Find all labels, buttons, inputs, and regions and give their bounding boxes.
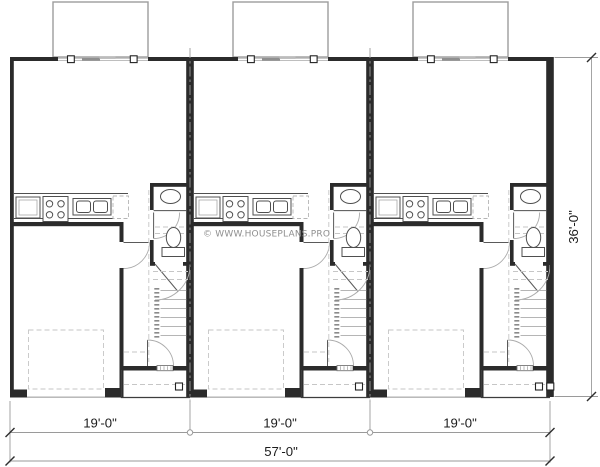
right-exterior-wall — [550, 57, 554, 397]
floor-plan-page: © WWW.HOUSEPLANS.PRO 19'-0" 19'-0" 19'-0… — [0, 0, 600, 467]
dimension-label-depth: 36'-0" — [566, 210, 581, 244]
dimension-label-total-width: 57'-0" — [264, 444, 298, 459]
watermark-text: © WWW.HOUSEPLANS.PRO — [203, 230, 330, 240]
dimension-label-unit-3: 19'-0" — [443, 416, 477, 431]
floor-plan-canvas: © WWW.HOUSEPLANS.PRO 19'-0" 19'-0" 19'-0… — [0, 0, 600, 467]
dimension-label-unit-1: 19'-0" — [83, 416, 117, 431]
dimension-label-unit-2: 19'-0" — [263, 416, 297, 431]
corner-porch-column — [547, 383, 554, 390]
